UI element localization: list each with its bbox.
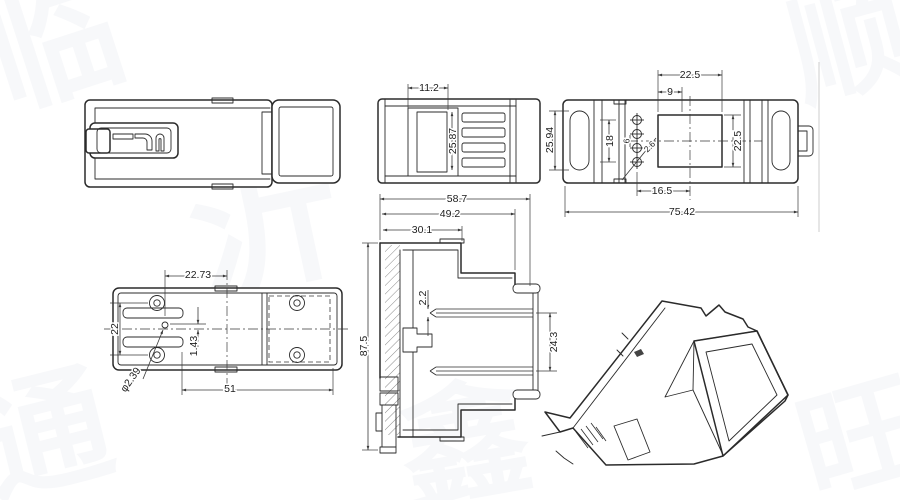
dim-bottom-boss-pitch-h: 51 — [224, 383, 236, 395]
view-section: 58.7 49.2 30.1 87.5 2.2 24.3 — [358, 193, 560, 453]
iso-foot-hook — [542, 432, 573, 464]
dim-section-mid-width: 49.2 — [440, 208, 461, 220]
header-cap-bottom — [513, 390, 540, 399]
connector-head — [272, 100, 340, 183]
dim-top-terminal-span: 18 — [604, 135, 616, 147]
dim-front-width: 11.2 — [419, 82, 439, 94]
dim-top-hole-offset: 16.5 — [652, 185, 673, 197]
drawing-sheet: 11.2 25.87 — [0, 0, 900, 500]
dim-top-overall-width: 75.42 — [669, 206, 695, 218]
top-body — [563, 100, 798, 183]
latch-clip — [86, 123, 178, 158]
section-wall-hatch — [385, 245, 400, 435]
dim-top-offset: 9 — [667, 86, 673, 98]
dim-section-pin-thickness: 2.2 — [417, 291, 429, 306]
dim-section-overall-width: 58.7 — [447, 193, 468, 205]
section-inner-bottom — [403, 404, 512, 430]
drawing-canvas: 临 沂 顺 通 鑫 旺 — [0, 0, 900, 500]
iso-silhouette — [545, 301, 788, 465]
dim-section-pin-span: 24.3 — [548, 332, 560, 353]
view-front: 11.2 25.87 — [378, 82, 540, 183]
dim-section-height: 87.5 — [358, 336, 370, 357]
dim-bottom-pin-offset: 1.43 — [188, 336, 200, 357]
din-clip-tab — [798, 126, 813, 156]
dim-top-hole-pitch: 6 — [621, 138, 631, 143]
view-bottom: 22.73 22 1.43 φ2.39 51 — [104, 269, 350, 396]
dim-top-ear-slot-height: 25.94 — [544, 127, 556, 153]
view-side — [85, 98, 340, 189]
pins — [430, 309, 533, 375]
header-cap-top — [513, 284, 540, 293]
dim-bottom-boss-pitch-v: 22 — [109, 323, 121, 335]
view-isometric — [542, 301, 788, 465]
dim-front-height: 25.87 — [447, 128, 459, 154]
view-top: 22.5 9 25.94 18 6 2.6 16.5 — [544, 69, 813, 218]
dim-top-window-height: 22.5 — [732, 131, 744, 152]
dim-bottom-boss-offset: 22.73 — [185, 269, 211, 281]
dim-top-window-width: 22.5 — [680, 69, 701, 81]
dim-section-inner-width: 30.1 — [412, 224, 433, 236]
section-inner-top — [403, 250, 512, 278]
